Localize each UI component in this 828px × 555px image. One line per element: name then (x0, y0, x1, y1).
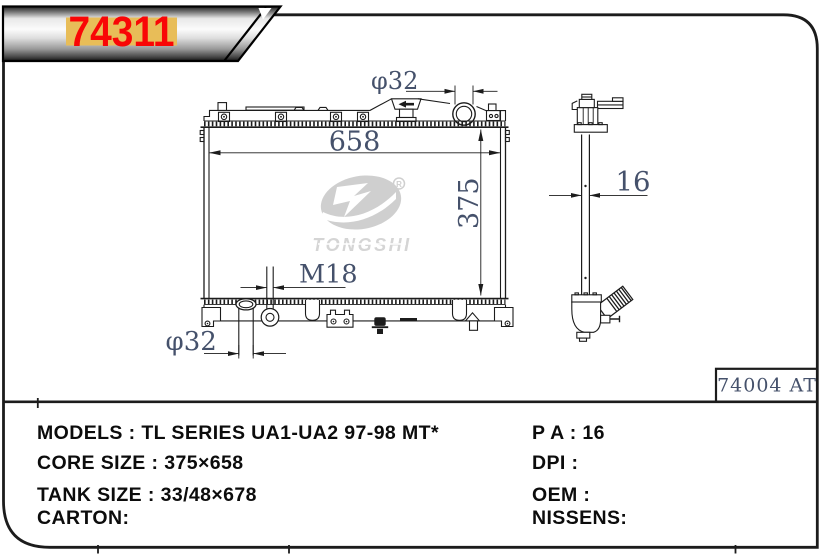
pressure-cap (392, 99, 422, 122)
top-neck-diameter-label: φ32 (371, 67, 418, 95)
radiator-side-view (572, 94, 633, 341)
reference-code: 74004 AT (717, 375, 817, 397)
outlet-pipe-diameter-label: φ32 (166, 327, 217, 357)
core-height-label: 375 (454, 177, 485, 229)
spec-nissens: NISSENS: (532, 507, 627, 530)
spec-models: MODELS : TL SERIES UA1-UA2 97-98 MT* (37, 422, 439, 445)
mount-pin (218, 103, 227, 111)
spec-tank-size: TANK SIZE : 33/48×678 (37, 484, 257, 507)
oil-cooler-fitting (261, 267, 279, 327)
dimension-m18: M18 (241, 260, 358, 291)
side-top-tank (572, 94, 623, 132)
core-thickness-label: 16 (616, 166, 651, 198)
core-width-label: 658 (329, 127, 381, 158)
drain-plug (372, 317, 388, 334)
spec-dpi: DPI : (532, 452, 578, 475)
catalog-page: { "banner": { "part_number": "74311" }, … (0, 0, 828, 555)
watermark-logo: R TONGSHI (312, 169, 411, 255)
dimension-outlet-pipe: φ32 (166, 327, 287, 359)
part-number-banner: 74311 (3, 7, 281, 62)
spec-carton: CARTON: (37, 507, 129, 530)
dimension-375: 375 (454, 130, 485, 296)
mount-pin (489, 104, 497, 111)
side-outlet-hose (597, 286, 633, 319)
center-bracket (327, 310, 353, 327)
dimension-658: 658 (209, 127, 501, 160)
oil-thread-label: M18 (299, 260, 358, 290)
mount-pin-u (306, 300, 320, 320)
reference-code-box: 74004 AT (716, 369, 817, 402)
mount-pin-u (453, 300, 467, 320)
screw-tabs (219, 112, 369, 121)
registered-mark-letter: R (396, 180, 402, 189)
spec-pa: P A : 16 (532, 422, 605, 445)
spec-oem: OEM : (532, 484, 590, 507)
dimension-top-neck: φ32 (371, 67, 498, 105)
spec-core-size: CORE SIZE : 375×658 (37, 452, 244, 475)
side-bottom-tank (572, 286, 633, 341)
dimension-16: 16 (549, 166, 651, 198)
part-number: 74311 (69, 8, 175, 56)
watermark-brand-text: TONGSHI (312, 235, 411, 255)
